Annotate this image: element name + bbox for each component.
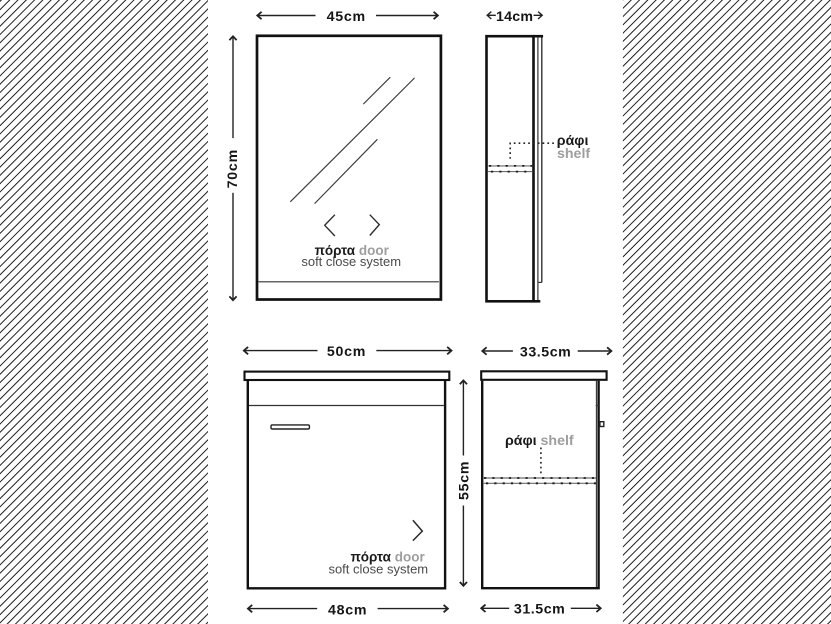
- svg-text:48cm: 48cm: [328, 602, 367, 618]
- svg-text:soft close system: soft close system: [301, 254, 401, 269]
- svg-text:ράφι shelf: ράφι shelf: [505, 433, 574, 449]
- svg-text:soft close system: soft close system: [328, 561, 428, 576]
- svg-text:50cm: 50cm: [327, 344, 366, 360]
- svg-text:shelf: shelf: [557, 146, 590, 162]
- svg-text:55cm: 55cm: [456, 461, 472, 500]
- svg-text:70cm: 70cm: [225, 149, 241, 188]
- svg-text:14cm: 14cm: [496, 9, 533, 25]
- svg-text:45cm: 45cm: [327, 9, 366, 25]
- svg-text:33.5cm: 33.5cm: [520, 344, 571, 360]
- svg-text:31.5cm: 31.5cm: [514, 602, 565, 618]
